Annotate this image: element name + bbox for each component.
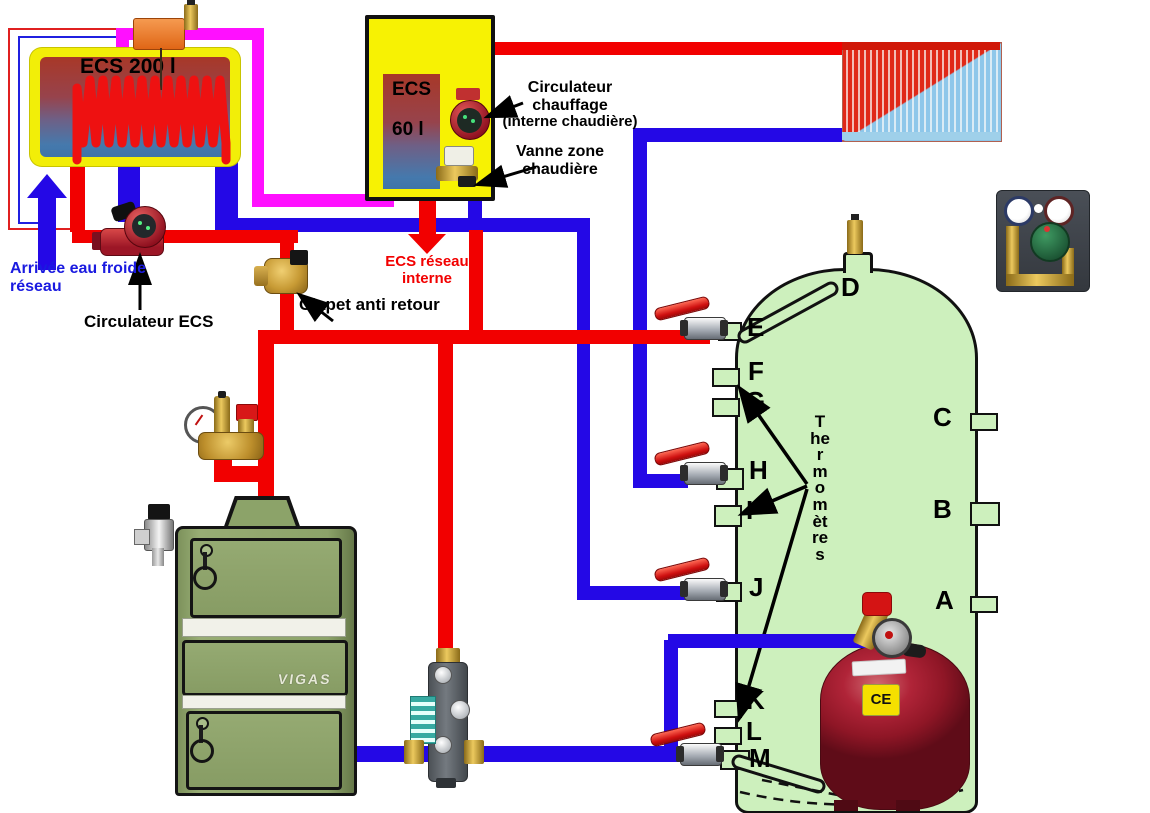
buffer-air-vent-icon [847, 220, 863, 254]
port-stub-C [970, 413, 998, 431]
check-valve-port [254, 266, 268, 286]
circ-chauffage-line3: (interne chaudière) [490, 114, 650, 131]
port-stub-G [712, 398, 740, 417]
vessel-gauge-dot [885, 631, 893, 639]
ball-valve-J [678, 565, 726, 605]
vessel-ce-sticker: CE [862, 684, 900, 716]
pump-station-pump [1030, 222, 1070, 262]
vessel-foot [896, 800, 920, 811]
check-valve-cap [290, 250, 308, 265]
port-label-G: G [745, 386, 765, 417]
coil-outlet-pipe [70, 160, 85, 232]
zone-valve-knob [458, 176, 476, 187]
motorized-valve-actuator [133, 18, 185, 50]
radiator-supply-pipe [487, 42, 847, 55]
heating-system-diagram: VIGAS ECS 200 l ECS 60 l [0, 0, 1150, 813]
pump-station-gauge-blue [1004, 196, 1034, 226]
buffer-air-vent-cap [851, 214, 859, 220]
ball-valve-H [678, 449, 726, 489]
port-label-H: H [749, 455, 768, 486]
ecs-reseau-label: ECS réseau interne [372, 254, 482, 287]
circ-chauffage-line1: Circulateur [490, 79, 650, 97]
port-label-C: C [933, 402, 952, 433]
valve-cap [680, 465, 688, 481]
blue-connector-J [577, 586, 689, 600]
door-handle-ring [193, 566, 217, 590]
mixing-valve-right-fitting [464, 740, 484, 764]
cold-water-line2: réseau [10, 278, 146, 296]
port-label-D: D [841, 272, 860, 303]
ball-valve-M [674, 730, 722, 770]
radiator-top-header [842, 42, 1000, 50]
cold-inlet-pipe [38, 196, 56, 270]
vessel-gauge [872, 618, 912, 658]
pump-station-pump-dot [1044, 226, 1050, 232]
boiler-band [182, 618, 346, 637]
circ-chauffage-label: Circulateur chauffage (interne chaudière… [490, 79, 650, 131]
port-label-M: M [749, 743, 771, 774]
port-label-F: F [748, 356, 764, 387]
circ-chauffage-line2: chauffage [490, 97, 650, 115]
chauffage-pump-led [463, 115, 467, 119]
blue-vertical-to-H [633, 128, 647, 488]
mixing-valve-drain [436, 778, 456, 788]
boiler-middle-panel [182, 640, 348, 696]
boiler-brand: VIGAS [277, 672, 333, 687]
pump-station-knob [1034, 204, 1043, 213]
valve-cap [680, 320, 688, 336]
ecs-reseau-line1: ECS réseau [372, 254, 482, 271]
actuator-sensor-wire [160, 48, 162, 90]
cold-water-label: Arrivée eau froide réseau [10, 260, 146, 295]
mixing-valve-dial [434, 736, 452, 754]
radiator-fins [842, 50, 1000, 132]
port-label-K: K [746, 685, 765, 716]
ecs-pump-led [146, 226, 150, 230]
valve-cap [720, 581, 728, 597]
mixing-valve-left-fitting [404, 740, 424, 764]
radiator-bottom-header [842, 132, 1000, 140]
cold-inlet-arrow-icon [27, 174, 67, 198]
valve-cap [676, 746, 684, 762]
vessel-foot [834, 800, 858, 811]
safety-group-pipe [214, 466, 266, 482]
tank-return-pipe [215, 160, 238, 220]
clapet-label: Clapet anti retour [299, 296, 440, 315]
wire-blue [18, 36, 20, 224]
ecs60-capacity-label: 60 l [392, 120, 424, 141]
blue-vertical-to-J [577, 218, 590, 600]
ce-mark: CE [871, 691, 892, 708]
bottom-return-main-pipe [350, 746, 686, 762]
port-stub-K [714, 700, 742, 718]
ecs-pump-face [132, 214, 156, 238]
boiler-safety-valve-stem [152, 548, 164, 566]
ecs200-air-vent-icon [184, 4, 198, 30]
valve-cap [720, 465, 728, 481]
thermostat-element [410, 696, 436, 744]
chauffage-pump-face [457, 108, 482, 133]
door-handle-ring [190, 739, 214, 763]
circulateur-ecs-label: Circulateur ECS [84, 313, 213, 332]
port-stub-M [720, 750, 750, 770]
buffer-tank-neck [843, 252, 873, 273]
vanne-zone-line2: chaudière [505, 161, 615, 179]
expansion-branch-horizontal [668, 634, 868, 648]
ecs200-air-vent-cap [187, 0, 195, 5]
ball-valve-E [678, 304, 726, 344]
boiler-band [182, 695, 346, 709]
boiler-loop-vertical-pipe [252, 28, 264, 206]
port-stub-A [970, 596, 998, 613]
wire-red [8, 28, 10, 230]
valve-cap [716, 746, 724, 762]
port-label-J: J [749, 572, 763, 603]
ecs-pump-led [138, 221, 142, 225]
mixing-valve-dial [450, 700, 470, 720]
vanne-zone-line1: Vanne zone [505, 143, 615, 161]
valve-cap [680, 581, 688, 597]
port-label-B: B [933, 494, 952, 525]
air-vent [214, 396, 230, 436]
boiler-safety-valve-nut [134, 529, 150, 545]
thermometres-label: Thermomètres [810, 414, 830, 563]
ecs-reseau-line2: interne [372, 271, 482, 288]
vanne-zone-label: Vanne zone chaudière [505, 143, 615, 178]
ecs-reseau-arrow-icon [408, 234, 446, 254]
port-label-E: E [747, 312, 764, 343]
port-label-I: I [746, 495, 753, 526]
pump-station-pipe [1006, 274, 1074, 286]
mixing-valve-dial [434, 666, 452, 684]
vessel-label-strip [852, 659, 907, 677]
port-stub-B [970, 502, 1000, 526]
port-label-A: A [935, 585, 954, 616]
valve-cap [720, 320, 728, 336]
hot-main-horizontal-pipe [258, 330, 710, 344]
ecs60-label: ECS [392, 80, 431, 101]
mixing-valve-supply-vertical [438, 344, 453, 652]
port-stub-F [712, 368, 740, 387]
chauffage-pump-flange [456, 88, 480, 100]
air-vent-cap [218, 391, 226, 398]
radiator-return-pipe [646, 128, 846, 142]
chauffage-pump-led [471, 119, 475, 123]
cold-water-line1: Arrivée eau froide [10, 260, 146, 278]
boiler-safety-valve-cap [148, 504, 170, 520]
vessel-valve-cap [862, 592, 892, 616]
zone-valve-actuator [444, 146, 474, 166]
safety-group-manifold [198, 432, 264, 460]
port-stub-I [714, 505, 742, 527]
